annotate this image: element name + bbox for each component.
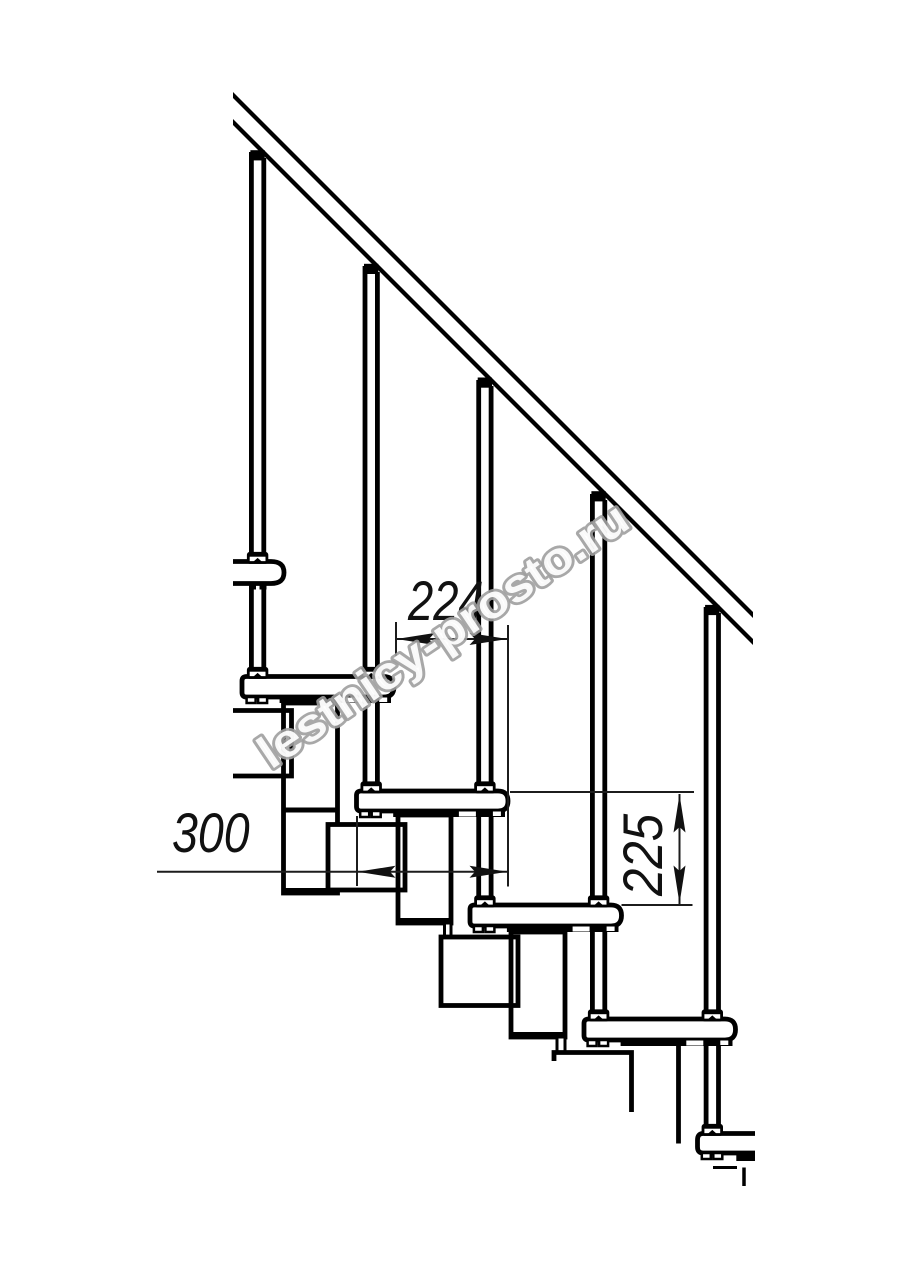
svg-text:225: 225: [612, 813, 675, 897]
svg-text:300: 300: [172, 801, 250, 864]
